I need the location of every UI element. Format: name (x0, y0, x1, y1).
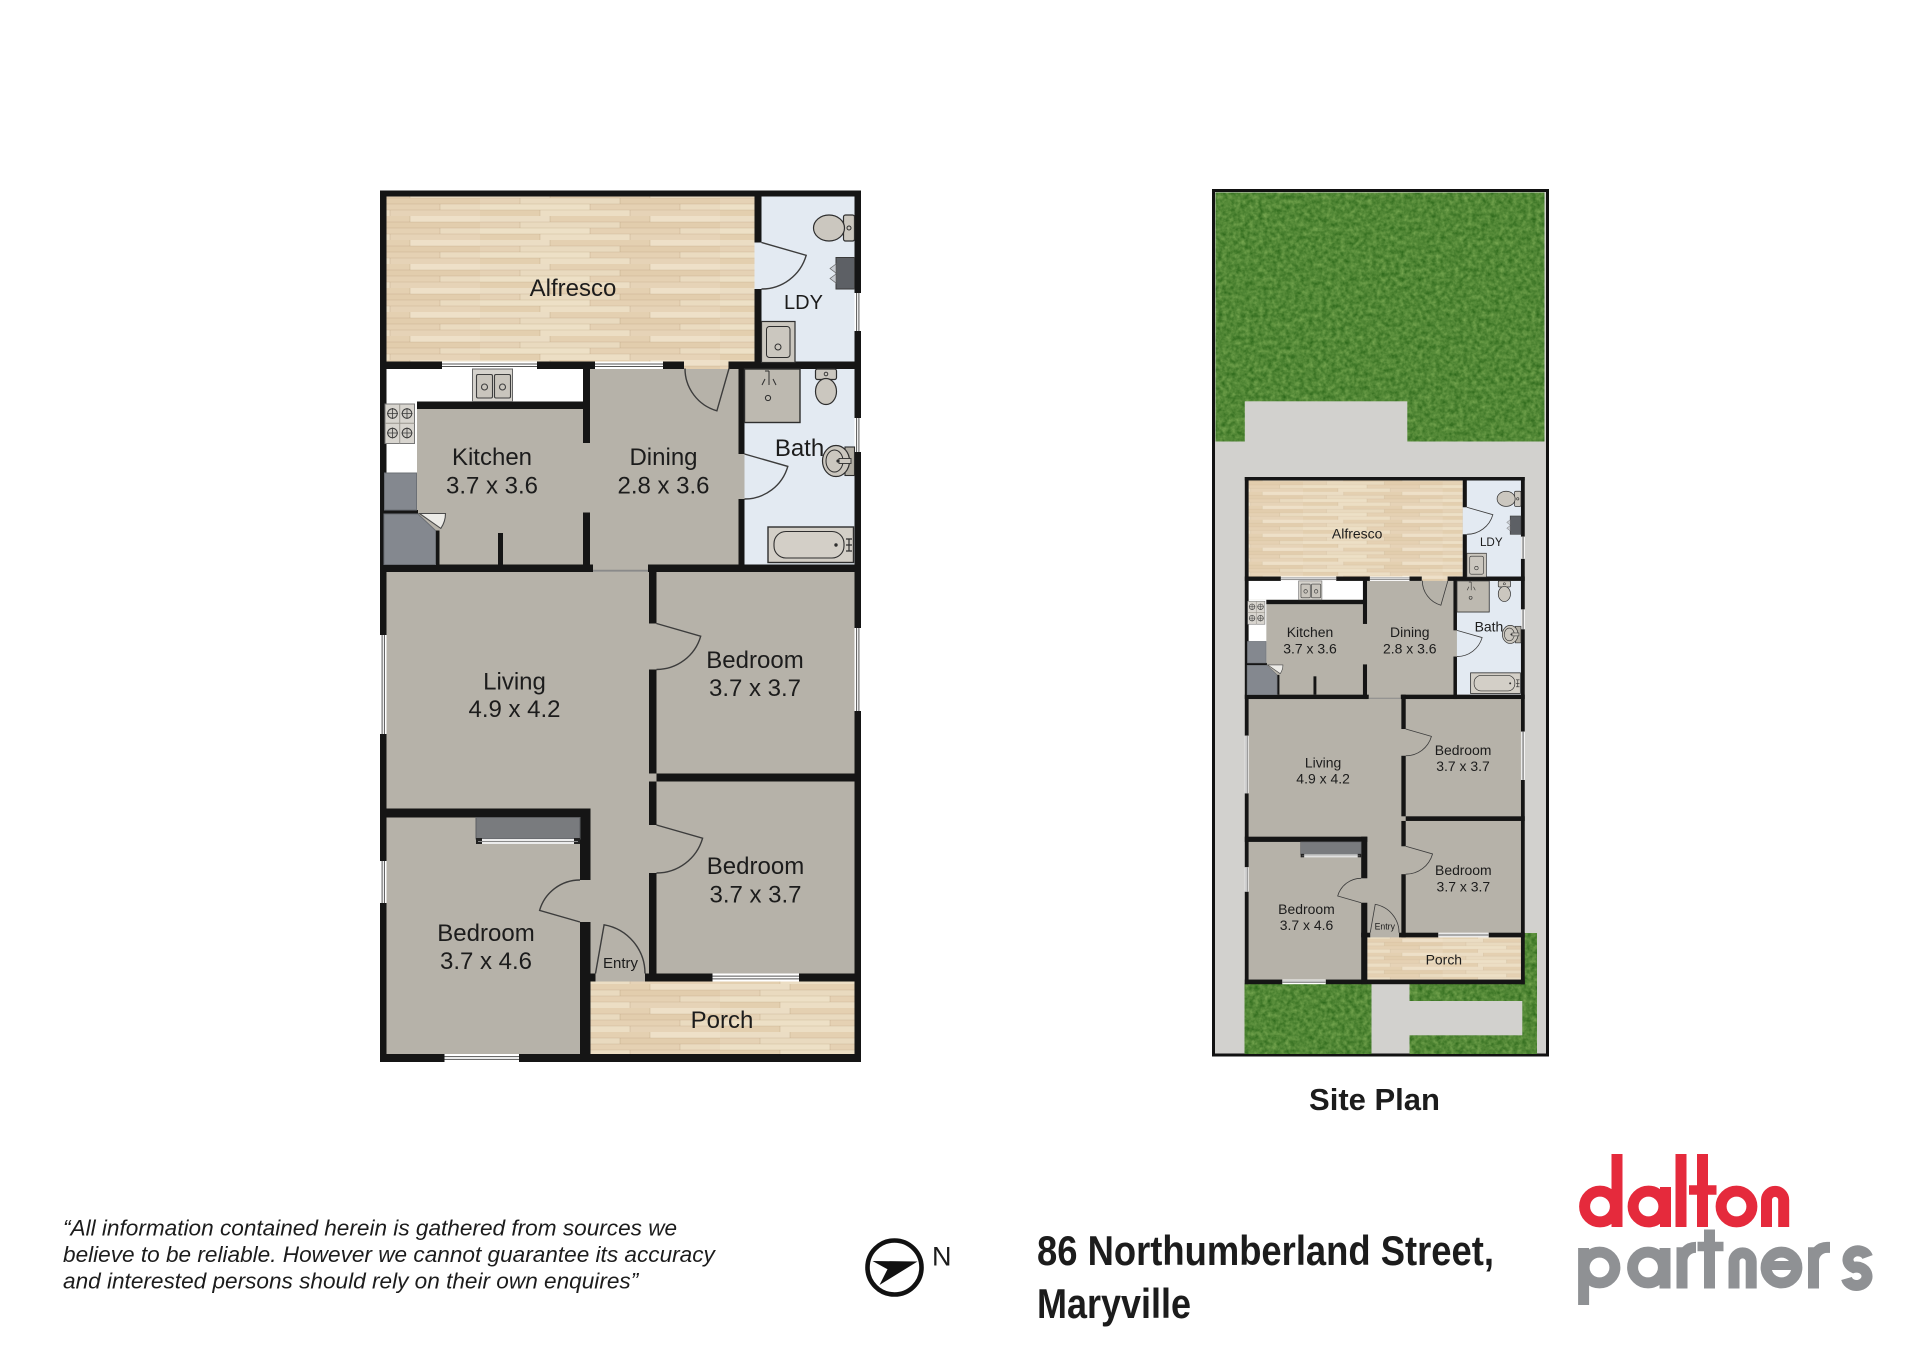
svg-text:2.8 x 3.6: 2.8 x 3.6 (617, 473, 709, 500)
svg-text:3.7 x 3.7: 3.7 x 3.7 (709, 882, 801, 909)
svg-text:Kitchen: Kitchen (452, 444, 532, 471)
svg-text:3.7 x 4.6: 3.7 x 4.6 (440, 948, 532, 975)
svg-text:Porch: Porch (691, 1007, 754, 1034)
svg-text:Bedroom: Bedroom (707, 853, 804, 880)
svg-text:4.9 x 4.2: 4.9 x 4.2 (468, 696, 560, 723)
svg-text:Dining: Dining (629, 444, 697, 471)
svg-text:“All information contained her: “All information contained herein is gat… (63, 1216, 677, 1241)
svg-text:Entry: Entry (603, 955, 639, 972)
svg-text:3.7 x 3.6: 3.7 x 3.6 (446, 473, 538, 500)
svg-text:Site Plan: Site Plan (1309, 1082, 1440, 1117)
svg-text:believe to be reliable. Howeve: believe to be reliable. However we canno… (63, 1242, 717, 1267)
svg-text:and interested persons should: and interested persons should rely on th… (63, 1269, 640, 1294)
svg-text:Maryville: Maryville (1037, 1280, 1191, 1327)
svg-text:LDY: LDY (784, 292, 823, 314)
svg-text:Alfresco: Alfresco (530, 275, 617, 302)
svg-text:3.7 x 3.7: 3.7 x 3.7 (709, 675, 801, 702)
svg-text:Living: Living (483, 669, 546, 696)
svg-text:N: N (932, 1242, 952, 1272)
svg-text:86 Northumberland Street,: 86 Northumberland Street, (1037, 1227, 1494, 1274)
svg-text:Bedroom: Bedroom (706, 647, 803, 674)
svg-text:Bath: Bath (775, 435, 824, 462)
svg-text:Bedroom: Bedroom (437, 920, 534, 947)
